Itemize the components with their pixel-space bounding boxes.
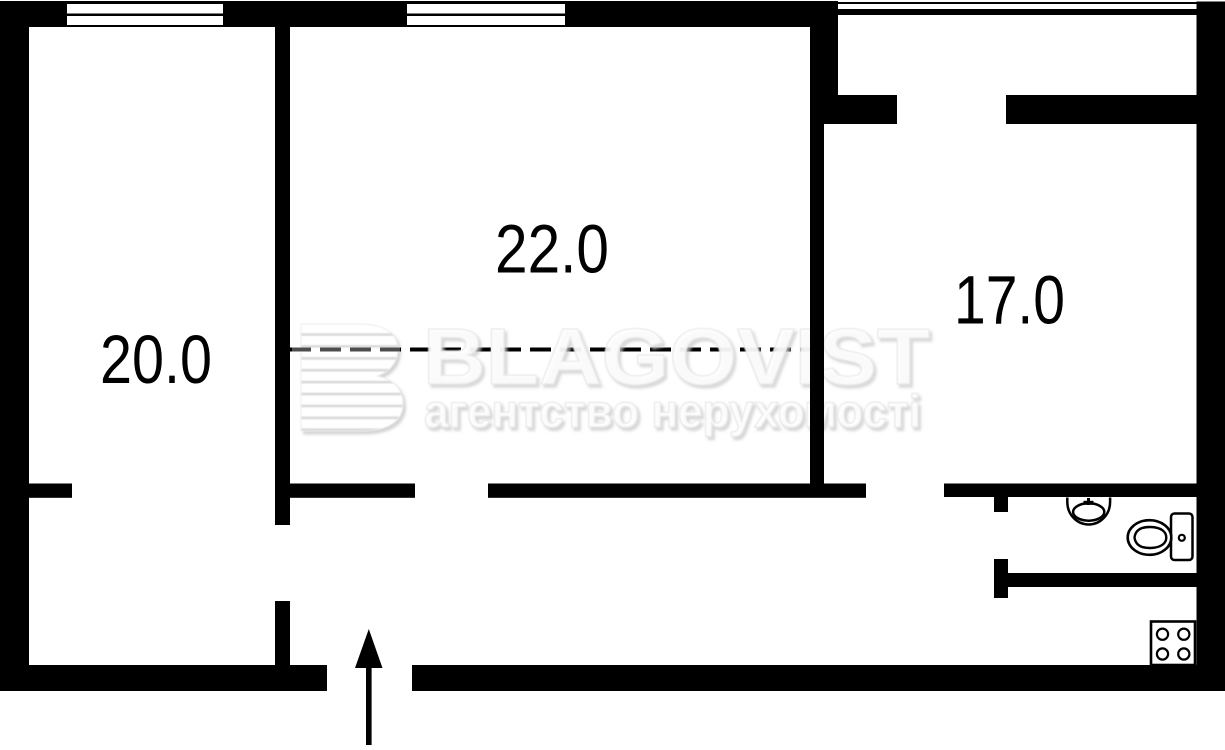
svg-text:агентство нерухомості: агентство нерухомості: [424, 385, 921, 437]
svg-text:22.0: 22.0: [495, 211, 609, 288]
svg-text:17.0: 17.0: [954, 262, 1065, 339]
svg-text:20.0: 20.0: [100, 321, 212, 398]
